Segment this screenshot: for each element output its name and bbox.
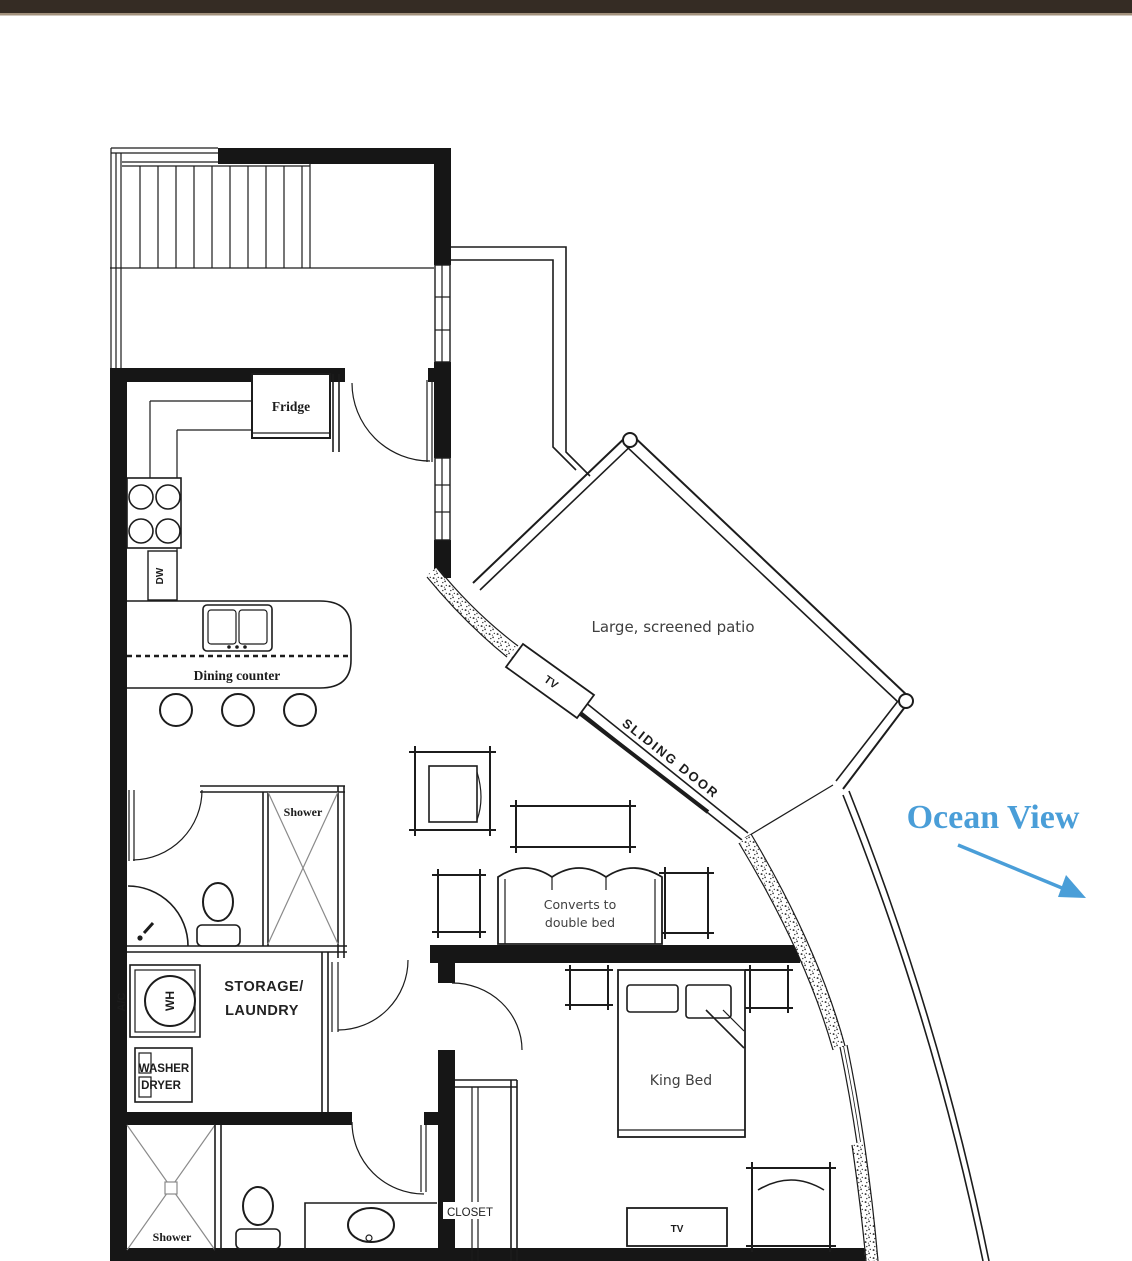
ac-label: A/C xyxy=(116,992,128,1011)
dishwasher-label: DW xyxy=(155,567,166,584)
sofa-label-line1: Converts to xyxy=(544,897,616,912)
floor-plan-page: Fridge DW xyxy=(0,0,1132,1261)
closet-label: CLOSET xyxy=(447,1207,493,1219)
patio-hinge-right xyxy=(899,694,913,708)
dishwasher: DW xyxy=(148,551,177,600)
stove xyxy=(127,478,181,548)
top-bar xyxy=(0,0,1132,16)
sofa-bed: Converts to double bed xyxy=(498,868,662,944)
fridge-label: Fridge xyxy=(272,399,310,414)
dining-counter-label: Dining counter xyxy=(194,668,281,683)
floor-plan-svg: Fridge DW xyxy=(0,0,1132,1261)
bedroom-tv-stand: TV xyxy=(627,1208,727,1246)
king-bed-label: King Bed xyxy=(650,1073,712,1089)
patio-hinge-top xyxy=(623,433,637,447)
storage-label-line2: LAUNDRY xyxy=(225,1003,299,1019)
patio-label: Large, screened patio xyxy=(591,618,754,636)
dryer-label: DRYER xyxy=(141,1080,182,1092)
shower-guest-label: Shower xyxy=(153,1230,192,1244)
washer-label: WASHER xyxy=(139,1063,190,1075)
kitchen-sink xyxy=(203,605,272,651)
shower-main-label: Shower xyxy=(284,805,323,819)
king-bed: King Bed xyxy=(618,970,745,1137)
storage-label-line1: STORAGE/ xyxy=(224,979,303,995)
ocean-view-label: Ocean View xyxy=(907,799,1080,836)
bedroom-tv-label: TV xyxy=(671,1224,684,1235)
sofa-label-line2: double bed xyxy=(545,915,615,930)
water-heater-label: WH xyxy=(163,991,177,1011)
